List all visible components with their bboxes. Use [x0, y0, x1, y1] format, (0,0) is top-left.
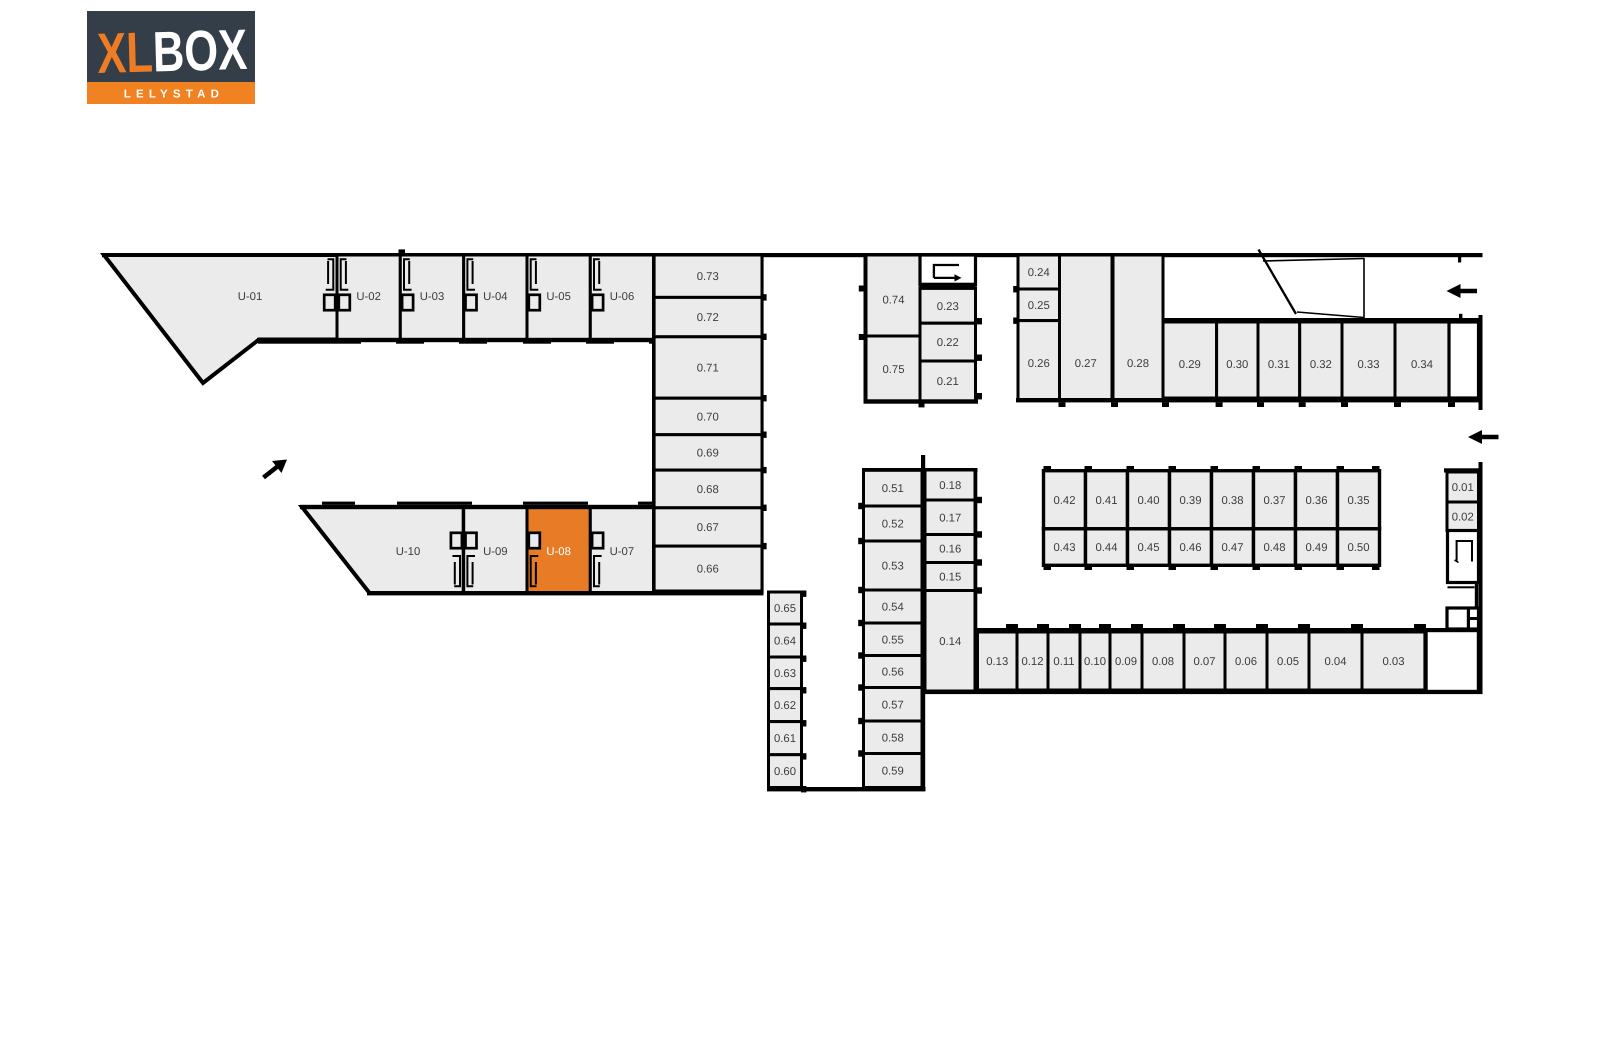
- svg-text:0.21: 0.21: [937, 376, 959, 388]
- svg-text:0.06: 0.06: [1235, 656, 1257, 668]
- svg-text:0.23: 0.23: [937, 301, 959, 313]
- svg-text:0.61: 0.61: [774, 733, 796, 745]
- svg-text:0.31: 0.31: [1268, 359, 1290, 371]
- svg-text:0.59: 0.59: [882, 766, 904, 778]
- svg-text:LELYSTAD: LELYSTAD: [124, 89, 224, 101]
- svg-text:0.13: 0.13: [986, 656, 1008, 668]
- svg-text:0.03: 0.03: [1383, 656, 1405, 668]
- svg-text:0.30: 0.30: [1226, 359, 1248, 371]
- svg-text:U-05: U-05: [546, 291, 571, 303]
- svg-text:U-06: U-06: [610, 291, 635, 303]
- svg-text:U-07: U-07: [610, 546, 635, 558]
- svg-text:0.02: 0.02: [1452, 511, 1474, 523]
- svg-text:0.04: 0.04: [1325, 656, 1347, 668]
- svg-text:0.35: 0.35: [1348, 495, 1370, 507]
- svg-text:U-04: U-04: [483, 291, 508, 303]
- svg-text:0.34: 0.34: [1411, 359, 1433, 371]
- svg-text:U-03: U-03: [420, 291, 445, 303]
- svg-text:0.75: 0.75: [883, 364, 905, 376]
- svg-text:0.67: 0.67: [697, 522, 719, 534]
- svg-text:0.36: 0.36: [1306, 495, 1328, 507]
- svg-text:0.46: 0.46: [1180, 542, 1202, 554]
- svg-text:0.26: 0.26: [1028, 358, 1050, 370]
- svg-text:U-08: U-08: [546, 546, 571, 558]
- svg-text:0.12: 0.12: [1022, 656, 1044, 668]
- svg-text:0.55: 0.55: [882, 634, 904, 646]
- svg-text:0.48: 0.48: [1264, 542, 1286, 554]
- svg-text:0.01: 0.01: [1452, 482, 1474, 494]
- svg-text:0.65: 0.65: [774, 603, 796, 615]
- svg-text:0.11: 0.11: [1053, 656, 1074, 668]
- svg-text:0.37: 0.37: [1264, 495, 1286, 507]
- svg-text:0.47: 0.47: [1222, 542, 1244, 554]
- svg-text:0.69: 0.69: [697, 447, 719, 459]
- svg-text:0.22: 0.22: [937, 337, 959, 349]
- svg-text:0.08: 0.08: [1152, 656, 1174, 668]
- svg-text:XLBOX: XLBOX: [96, 18, 248, 86]
- svg-text:0.32: 0.32: [1310, 359, 1332, 371]
- svg-text:0.38: 0.38: [1222, 495, 1244, 507]
- svg-text:0.41: 0.41: [1096, 495, 1118, 507]
- svg-text:0.60: 0.60: [774, 766, 796, 778]
- svg-text:0.07: 0.07: [1194, 656, 1216, 668]
- svg-text:0.52: 0.52: [882, 519, 904, 531]
- svg-text:0.73: 0.73: [697, 271, 719, 283]
- svg-text:0.09: 0.09: [1115, 656, 1137, 668]
- svg-text:0.49: 0.49: [1306, 542, 1328, 554]
- svg-text:0.29: 0.29: [1179, 359, 1201, 371]
- svg-text:0.53: 0.53: [882, 561, 904, 573]
- svg-text:0.54: 0.54: [882, 602, 904, 614]
- svg-text:0.64: 0.64: [774, 636, 796, 648]
- svg-text:0.50: 0.50: [1348, 542, 1370, 554]
- svg-text:U-02: U-02: [356, 291, 381, 303]
- svg-text:0.71: 0.71: [697, 363, 719, 375]
- svg-text:0.10: 0.10: [1084, 656, 1106, 668]
- svg-text:0.39: 0.39: [1180, 495, 1202, 507]
- svg-text:0.72: 0.72: [697, 312, 719, 324]
- svg-text:0.51: 0.51: [882, 483, 904, 495]
- svg-text:0.63: 0.63: [774, 668, 796, 680]
- svg-text:0.43: 0.43: [1054, 542, 1076, 554]
- svg-text:0.42: 0.42: [1054, 495, 1076, 507]
- svg-text:0.56: 0.56: [882, 667, 904, 679]
- svg-text:0.14: 0.14: [939, 636, 961, 648]
- svg-text:U-10: U-10: [396, 546, 421, 558]
- svg-text:U-09: U-09: [483, 546, 508, 558]
- svg-text:0.66: 0.66: [697, 564, 719, 576]
- svg-text:0.58: 0.58: [882, 732, 904, 744]
- svg-text:0.33: 0.33: [1358, 359, 1380, 371]
- svg-text:0.74: 0.74: [883, 295, 905, 307]
- svg-text:U-01: U-01: [238, 291, 263, 303]
- svg-text:0.28: 0.28: [1127, 358, 1149, 370]
- svg-text:0.05: 0.05: [1277, 656, 1299, 668]
- svg-text:0.45: 0.45: [1138, 542, 1160, 554]
- svg-text:0.18: 0.18: [939, 480, 961, 492]
- svg-text:0.70: 0.70: [697, 411, 719, 423]
- svg-text:0.68: 0.68: [697, 484, 719, 496]
- svg-text:0.44: 0.44: [1096, 542, 1118, 554]
- svg-text:0.57: 0.57: [882, 699, 904, 711]
- svg-text:0.40: 0.40: [1138, 495, 1160, 507]
- svg-text:0.62: 0.62: [774, 700, 796, 712]
- svg-text:0.24: 0.24: [1028, 267, 1050, 279]
- svg-text:0.17: 0.17: [939, 512, 961, 524]
- svg-text:0.15: 0.15: [939, 572, 961, 584]
- svg-text:0.16: 0.16: [939, 544, 961, 556]
- svg-text:0.27: 0.27: [1075, 358, 1097, 370]
- svg-text:0.25: 0.25: [1028, 300, 1050, 312]
